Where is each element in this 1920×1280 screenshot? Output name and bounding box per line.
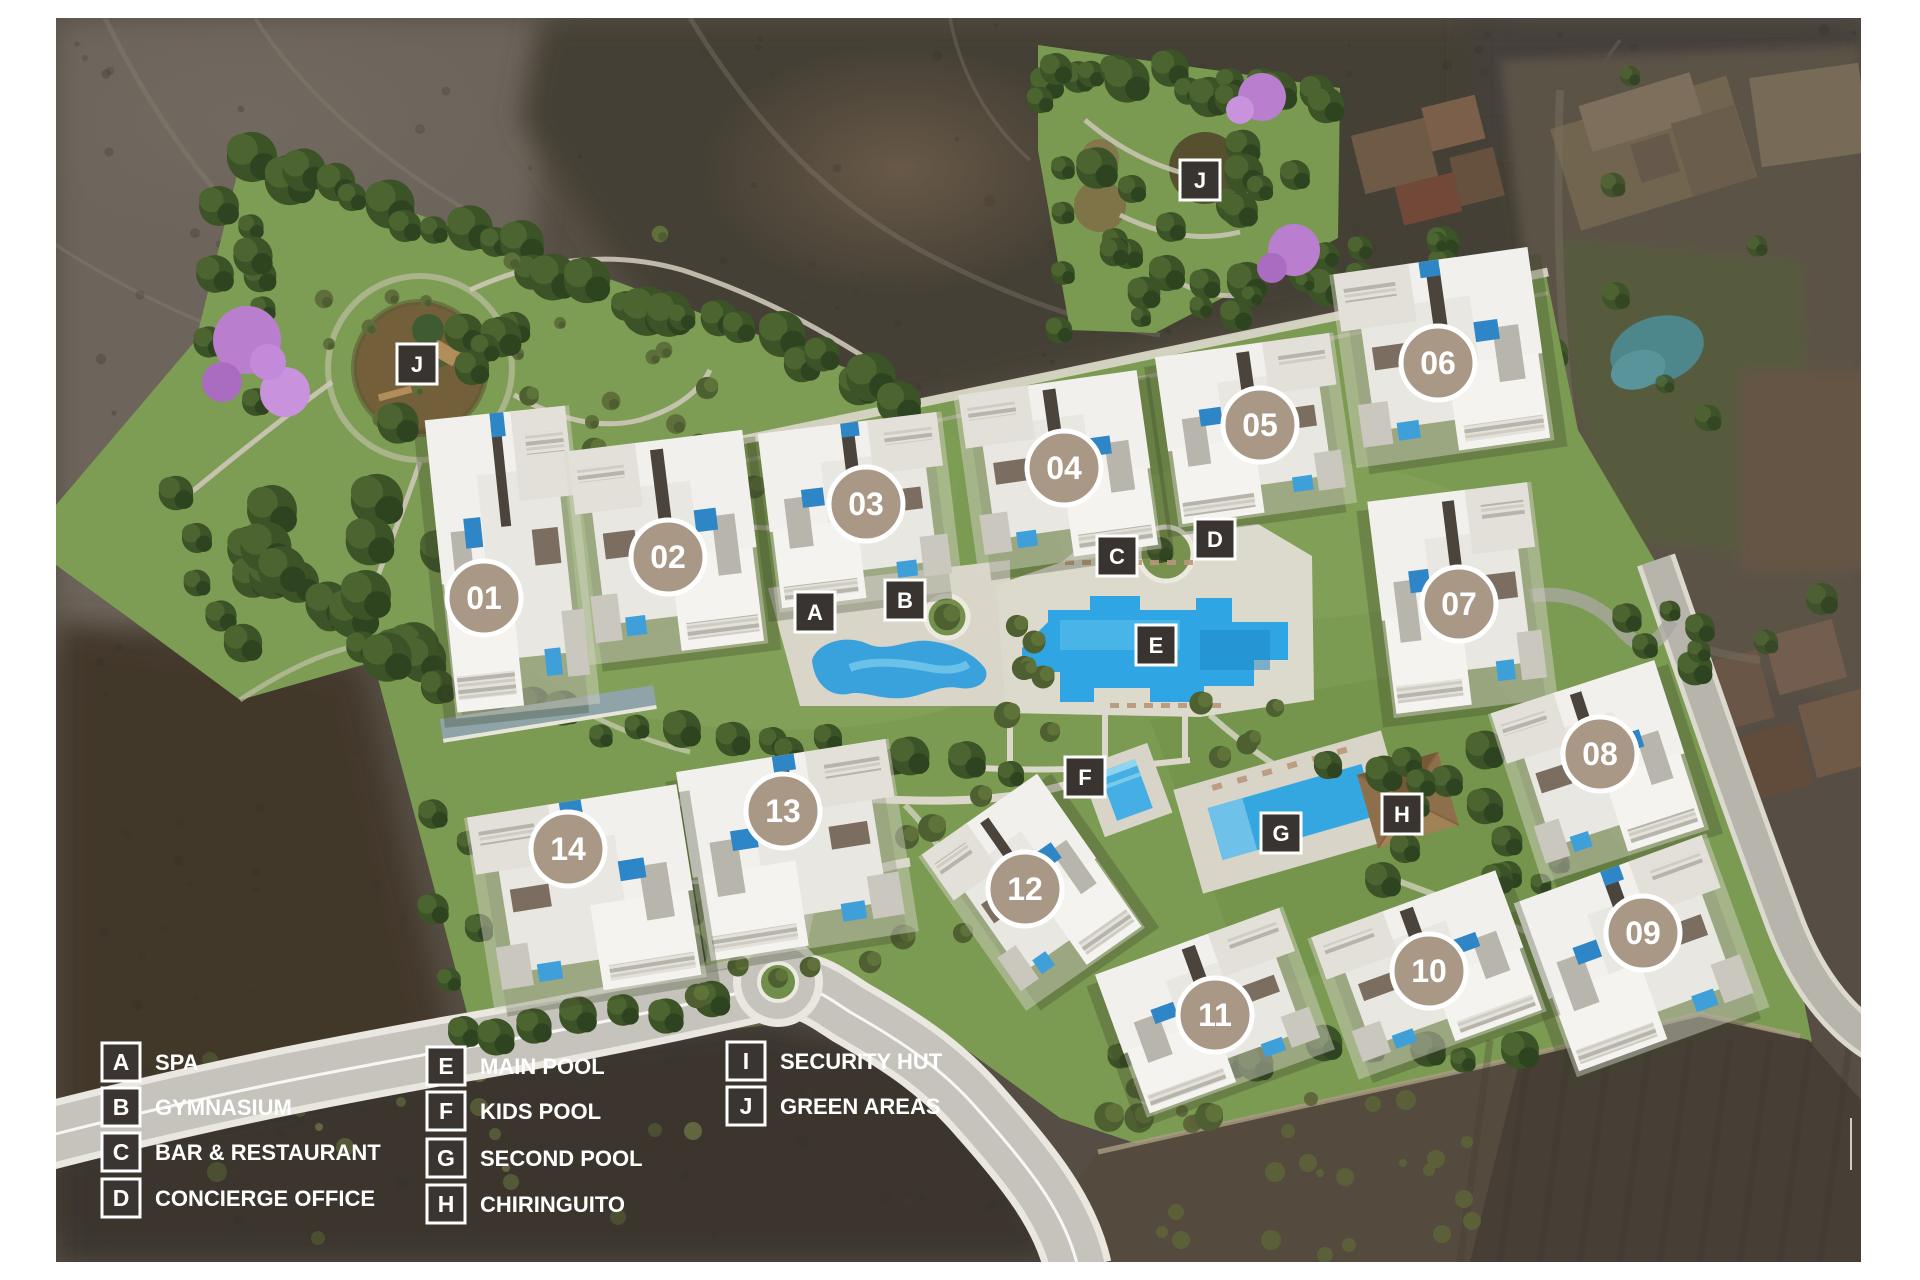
svg-text:SPA: SPA: [155, 1050, 199, 1075]
svg-text:F: F: [439, 1098, 453, 1124]
svg-text:KIDS POOL: KIDS POOL: [480, 1099, 601, 1124]
svg-text:09: 09: [1625, 915, 1661, 951]
svg-text:04: 04: [1046, 450, 1082, 486]
svg-text:10: 10: [1411, 953, 1447, 989]
svg-text:14: 14: [550, 831, 586, 867]
svg-text:G: G: [1272, 821, 1289, 846]
svg-text:08: 08: [1582, 736, 1618, 772]
svg-text:J: J: [740, 1093, 753, 1119]
svg-text:CHIRINGUITO: CHIRINGUITO: [480, 1192, 625, 1217]
svg-text:GREEN AREAS: GREEN AREAS: [780, 1094, 941, 1119]
svg-text:B: B: [113, 1094, 130, 1120]
svg-text:12: 12: [1007, 871, 1043, 907]
svg-text:GYMNASIUM: GYMNASIUM: [155, 1095, 292, 1120]
svg-text:CONCIERGE OFFICE: CONCIERGE OFFICE: [155, 1186, 375, 1211]
svg-text:SECOND POOL: SECOND POOL: [480, 1146, 643, 1171]
svg-text:13: 13: [765, 793, 801, 829]
svg-text:D: D: [113, 1185, 130, 1211]
svg-text:11: 11: [1198, 997, 1232, 1033]
svg-text:C: C: [113, 1139, 130, 1165]
svg-text:J: J: [411, 352, 423, 377]
svg-text:SECURITY HUT: SECURITY HUT: [780, 1049, 943, 1074]
svg-text:F: F: [1078, 765, 1091, 790]
svg-text:A: A: [113, 1049, 130, 1075]
svg-text:E: E: [1149, 633, 1164, 658]
svg-text:BAR & RESTAURANT: BAR & RESTAURANT: [155, 1140, 381, 1165]
svg-text:D: D: [1207, 527, 1223, 552]
svg-text:02: 02: [650, 539, 686, 575]
svg-text:07: 07: [1441, 586, 1477, 622]
svg-text:06: 06: [1420, 345, 1456, 381]
svg-text:05: 05: [1242, 407, 1278, 443]
svg-text:C: C: [1109, 544, 1125, 569]
svg-text:B: B: [897, 588, 913, 613]
svg-text:03: 03: [848, 486, 884, 522]
svg-text:I: I: [743, 1048, 749, 1074]
svg-text:H: H: [438, 1191, 455, 1217]
svg-text:G: G: [437, 1145, 455, 1171]
svg-text:J: J: [1194, 168, 1206, 193]
svg-text:A: A: [807, 600, 823, 625]
svg-text:H: H: [1394, 802, 1410, 827]
svg-text:01: 01: [466, 580, 502, 616]
svg-text:E: E: [438, 1053, 453, 1079]
svg-text:MAIN POOL: MAIN POOL: [480, 1054, 605, 1079]
